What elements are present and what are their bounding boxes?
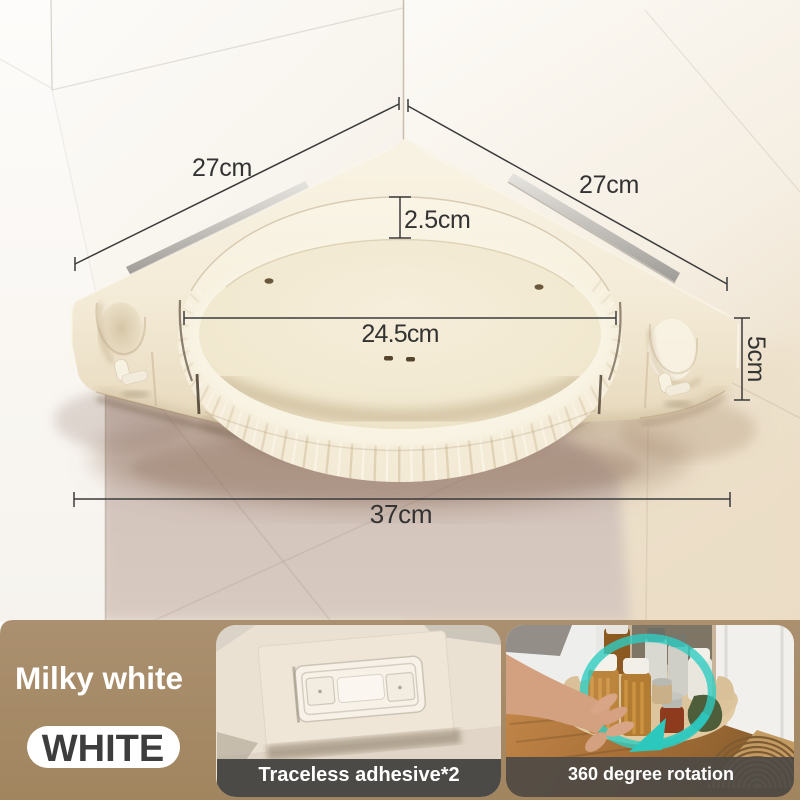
svg-text:5cm: 5cm [742, 336, 770, 382]
svg-text:Milky white: Milky white [15, 660, 183, 696]
svg-text:27cm: 27cm [192, 154, 252, 182]
svg-text:360 degree rotation: 360 degree rotation [568, 764, 734, 784]
svg-text:WHITE: WHITE [42, 728, 164, 770]
svg-text:Traceless adhesive*2: Traceless adhesive*2 [258, 764, 459, 786]
svg-text:24.5cm: 24.5cm [361, 320, 438, 348]
svg-text:37cm: 37cm [370, 499, 432, 529]
svg-text:2.5cm: 2.5cm [404, 206, 471, 234]
svg-text:27cm: 27cm [579, 171, 639, 199]
